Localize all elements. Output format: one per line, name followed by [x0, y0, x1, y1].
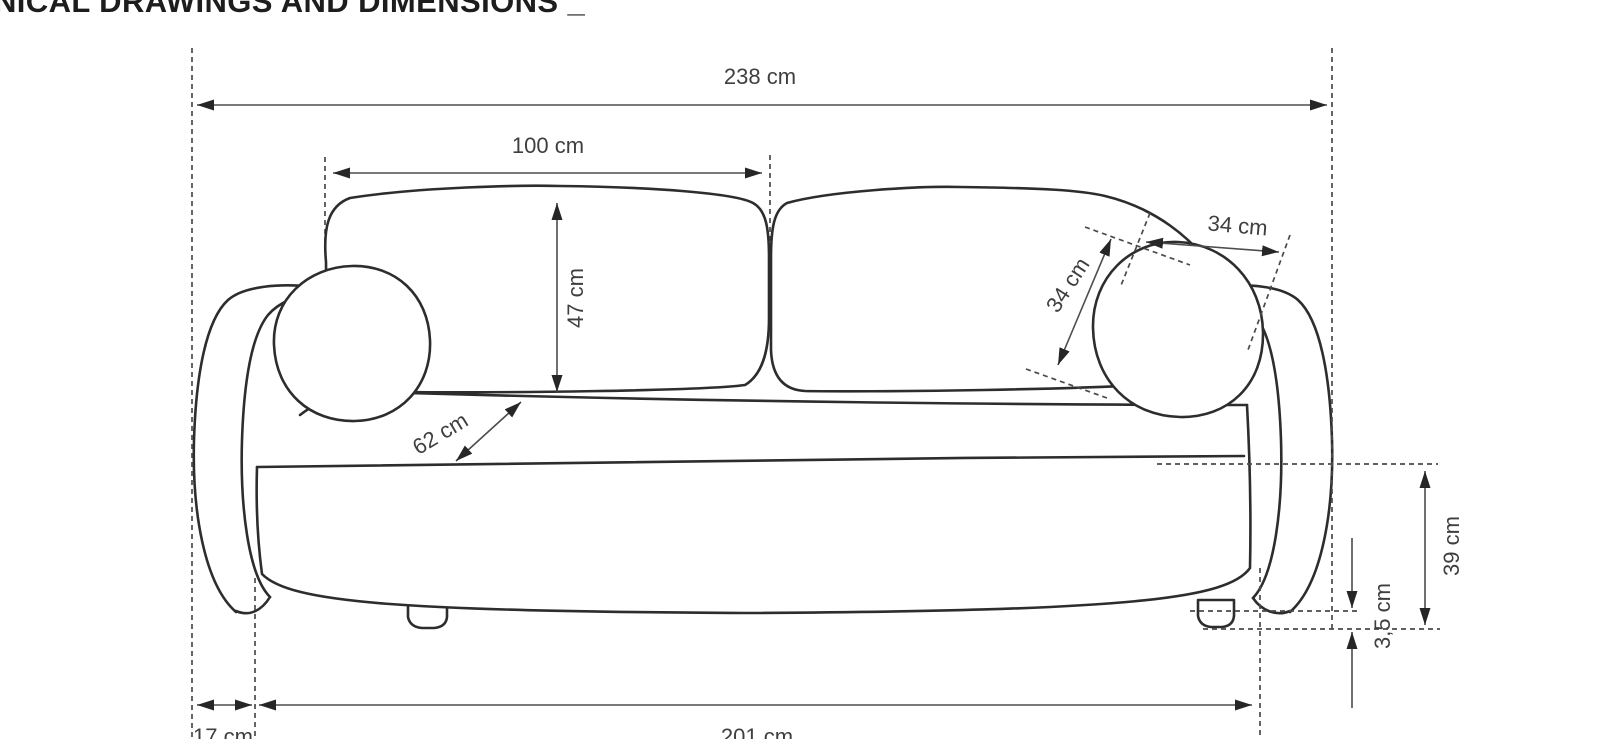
pillow-right	[1093, 242, 1263, 417]
label-backrest-width: 100 cm	[512, 133, 584, 158]
label-arm-depth: 17 cm	[193, 724, 253, 739]
label-seat-height: 39 cm	[1439, 516, 1464, 576]
label-pillow-width: 34 cm	[1207, 210, 1269, 240]
label-leg-height: 3,5 cm	[1370, 583, 1395, 649]
label-overall-width: 238 cm	[724, 64, 796, 89]
label-seat-width: 201 cm	[721, 724, 793, 739]
arm-left-bottom	[236, 597, 270, 613]
seat-base	[257, 392, 1251, 613]
sofa-technical-drawing: 238 cm 100 cm 47 cm 62 cm 34 cm 34 cm 39…	[0, 0, 1600, 739]
label-backrest-height: 47 cm	[563, 268, 588, 328]
technical-drawing-page: NICAL DRAWINGS AND DIMENSIONS _	[0, 0, 1600, 739]
sofa-foot-right	[1198, 600, 1234, 627]
sofa-outline	[194, 186, 1332, 628]
pillow-left	[274, 266, 430, 421]
